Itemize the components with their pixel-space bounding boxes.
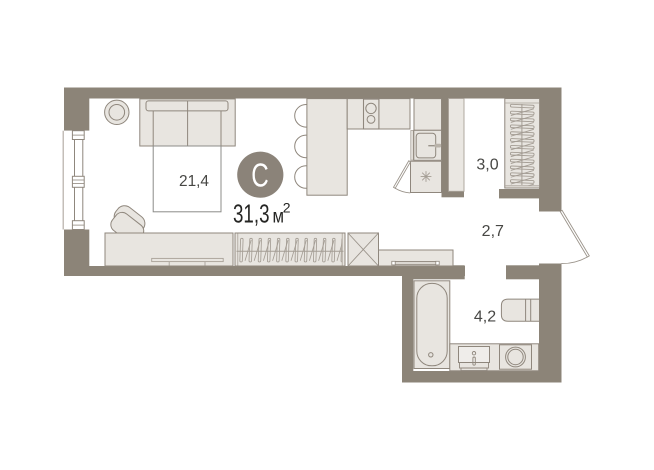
svg-text:21,4: 21,4 <box>179 173 209 190</box>
svg-text:4,2: 4,2 <box>474 309 496 326</box>
svg-text:C: C <box>251 157 269 194</box>
svg-text:31,3: 31,3 <box>233 201 270 229</box>
svg-text:3,0: 3,0 <box>476 157 498 174</box>
svg-text:2,7: 2,7 <box>482 223 504 240</box>
svg-text:2: 2 <box>283 200 291 216</box>
